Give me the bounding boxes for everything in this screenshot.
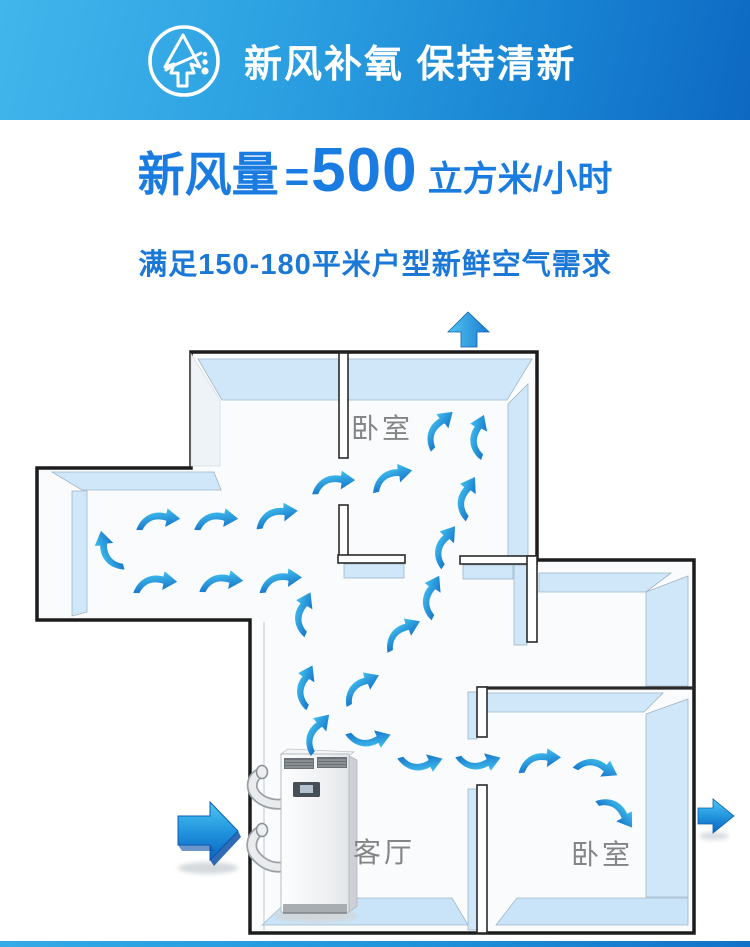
bottom-section-edge <box>0 941 750 947</box>
living-room-label: 客厅 <box>353 837 415 868</box>
air-inlet-arrow-icon <box>178 802 241 874</box>
bedroom-top-label: 卧室 <box>351 413 413 444</box>
unit-base <box>283 904 347 913</box>
bedroom-bottom-label: 卧室 <box>571 839 633 870</box>
air-outlet-top-arrow-icon <box>448 312 489 347</box>
page-root: 新风补氧 保持清新 新风量 = 500 立方米/小时 满足150-180平米户型… <box>0 0 750 947</box>
floor-plan-diagram: 卧室 客厅 卧室 <box>0 0 750 947</box>
control-display <box>293 782 320 797</box>
air-outlet-right-arrow-icon <box>698 799 734 840</box>
floor-highlight <box>496 898 688 925</box>
